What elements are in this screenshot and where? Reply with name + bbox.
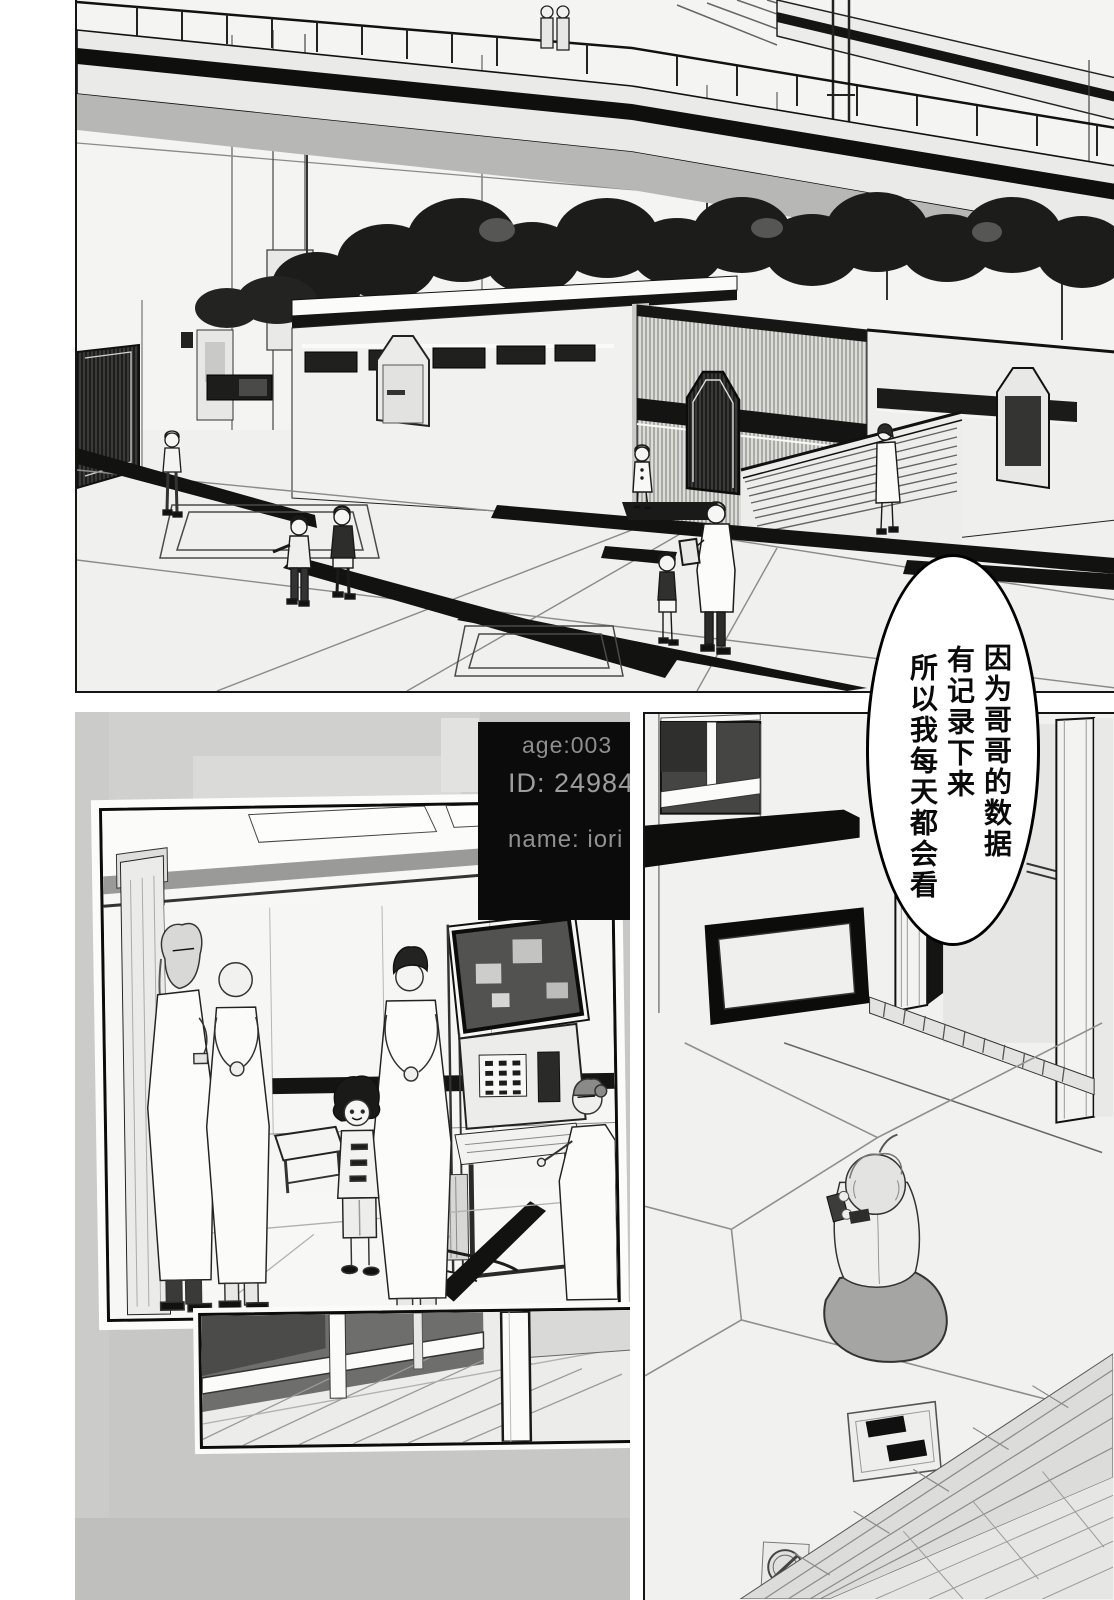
data-monitor-screen: age:003 ID: 249842 name: iori (478, 722, 630, 920)
tone-block (441, 718, 479, 792)
panel-lab-montage: age:003 ID: 249842 name: iori (75, 712, 630, 1600)
tone-block (193, 756, 461, 810)
monitor-age-line: age:003 (522, 732, 630, 759)
door-slat-face (687, 372, 739, 494)
monitor-name-line: name: iori (508, 826, 630, 854)
window-post (501, 1311, 531, 1441)
bubble-line-3: 所以我每天都会看 (904, 643, 941, 901)
bubble-line-2: 有记录下来 (941, 643, 978, 901)
bubble-line-1: 因为哥哥的数据 (978, 643, 1015, 901)
monitor-id-line: ID: 249842 (508, 768, 630, 799)
window-artwork (201, 1310, 630, 1446)
speech-bubble-text: 因为哥哥的数据 有记录下来 所以我每天都会看 (904, 643, 1015, 901)
tone-block (75, 1518, 630, 1600)
floor-hatch (848, 1402, 941, 1482)
speech-bubble: 因为哥哥的数据 有记录下来 所以我每天都会看 (866, 554, 1040, 946)
people-on-walkway (541, 6, 569, 50)
window-scene-frame (198, 1307, 630, 1449)
manga-page: age:003 ID: 249842 name: iori (0, 0, 1114, 1600)
